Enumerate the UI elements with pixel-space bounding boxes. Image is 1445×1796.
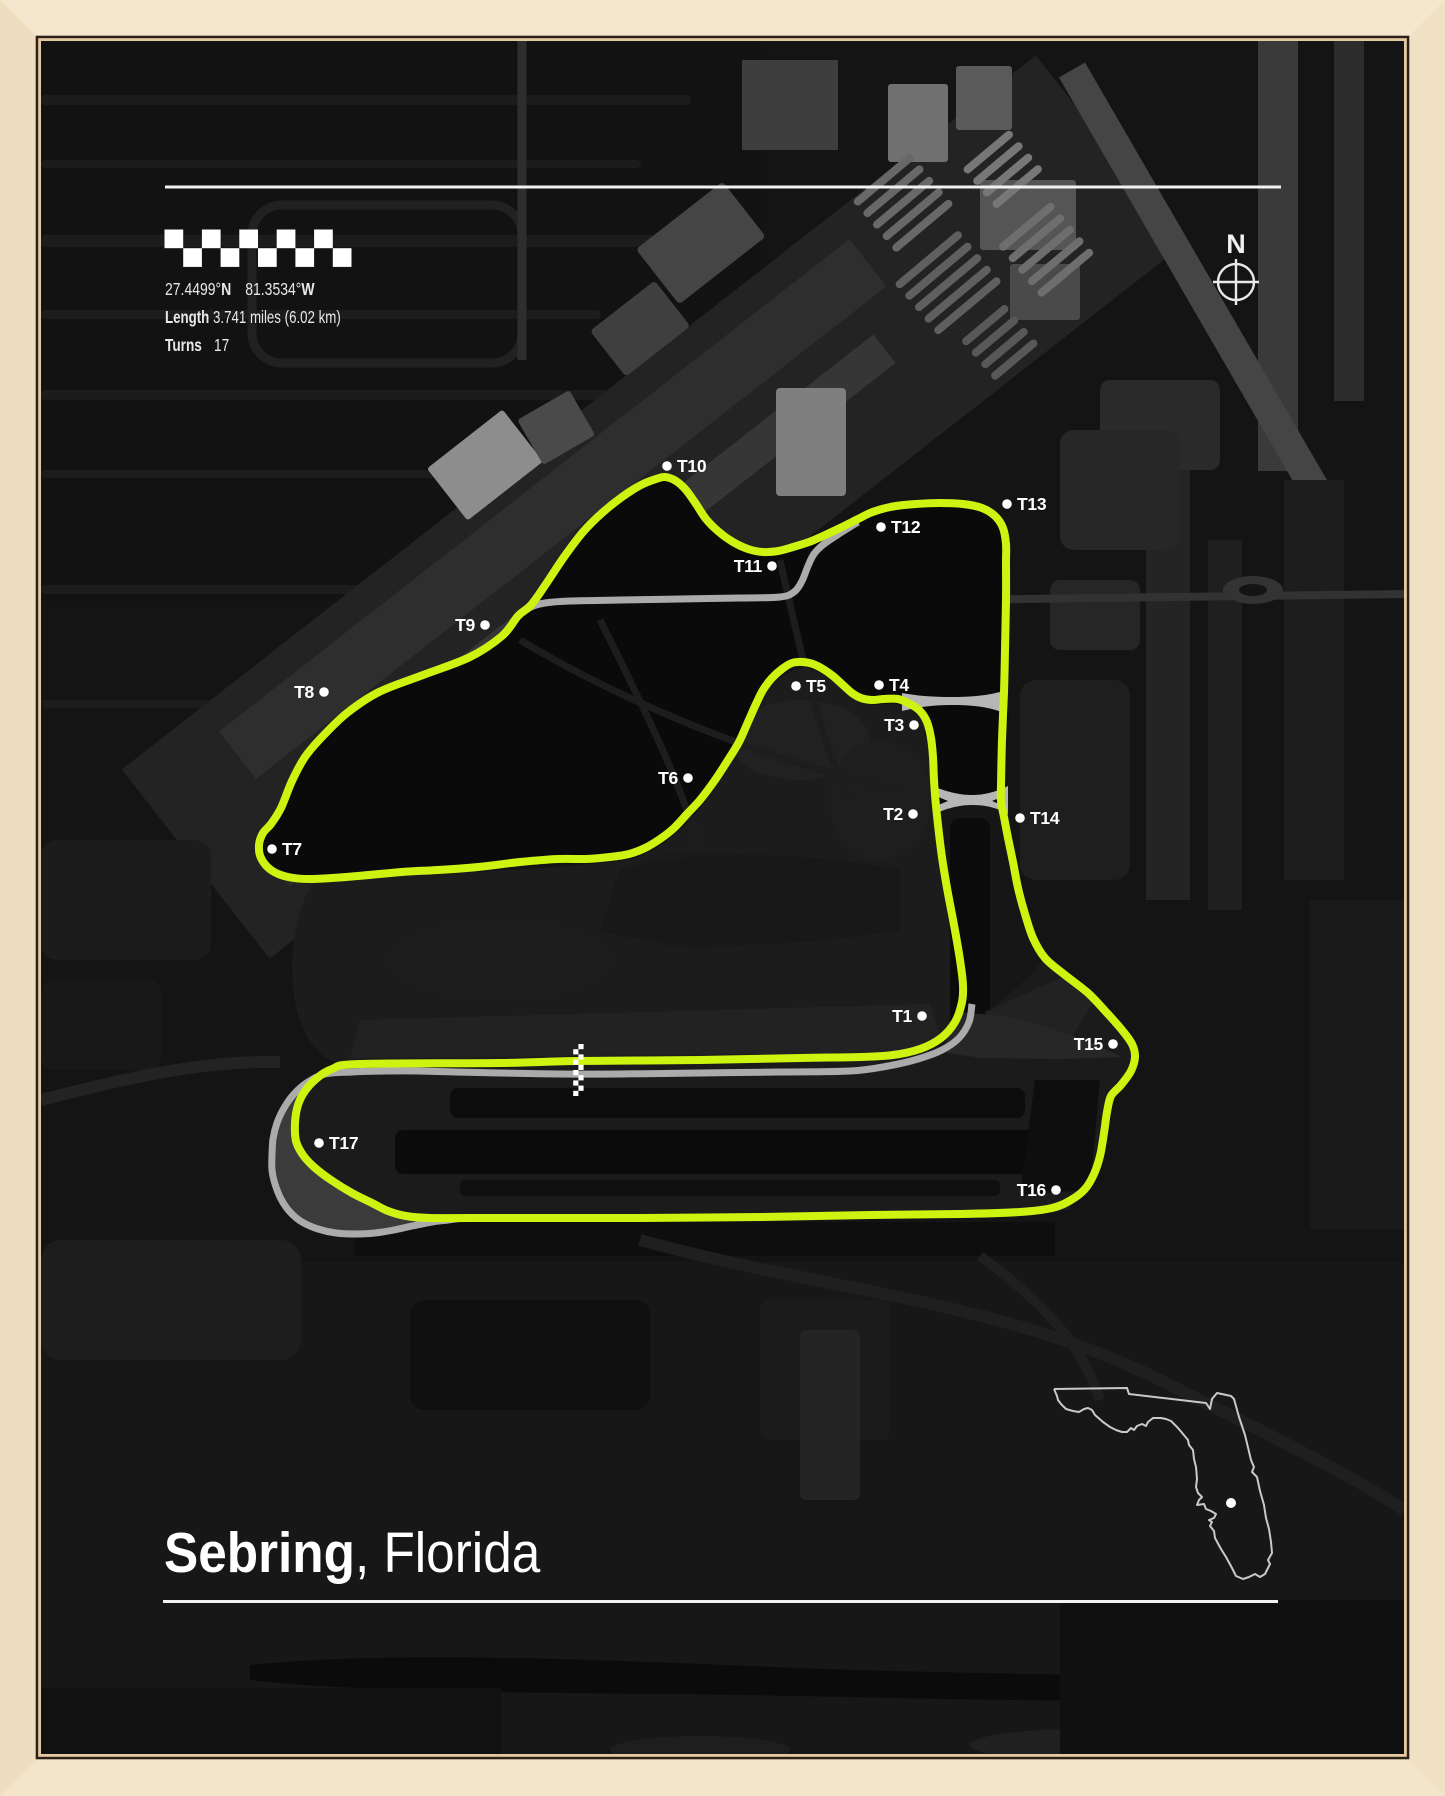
svg-text:T6: T6 [658,768,678,788]
svg-text:T10: T10 [677,456,707,476]
svg-text:T3: T3 [884,715,904,735]
svg-text:T1: T1 [892,1006,912,1026]
svg-text:17: 17 [214,337,229,356]
svg-text:Turns: Turns [165,337,202,356]
svg-text:T12: T12 [891,517,921,537]
svg-text:N: N [1226,229,1246,259]
svg-text:T14: T14 [1030,808,1060,828]
svg-text:27.4499°N 81.3534°W: 27.4499°N 81.3534°W [165,281,315,300]
svg-text:T13: T13 [1017,494,1047,514]
svg-text:T4: T4 [889,675,909,695]
svg-text:T7: T7 [282,839,302,859]
svg-text:T16: T16 [1017,1180,1047,1200]
svg-text:T5: T5 [806,676,826,696]
svg-text:T17: T17 [329,1133,358,1153]
svg-text:Length 3.741 miles (6.02 km): Length 3.741 miles (6.02 km) [165,308,341,327]
svg-text:T11: T11 [734,556,763,576]
svg-text:T8: T8 [294,682,314,702]
svg-text:T9: T9 [455,615,475,635]
svg-text:Sebring, Florida: Sebring, Florida [164,1522,541,1585]
svg-text:T2: T2 [883,804,903,824]
svg-text:T15: T15 [1074,1034,1104,1054]
